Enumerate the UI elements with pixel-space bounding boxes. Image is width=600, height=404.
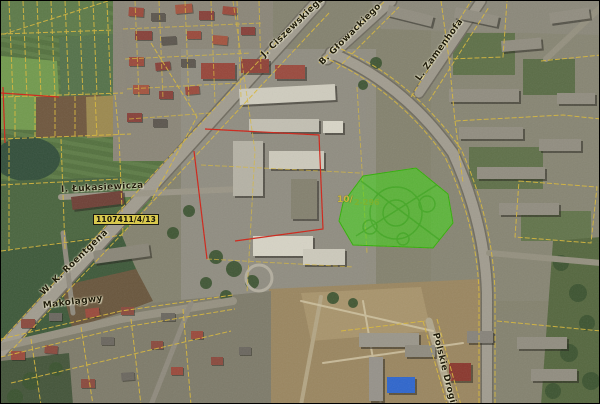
aerial-imagery-layer bbox=[1, 1, 600, 404]
map-viewport[interactable]: 1107411/4/13 10/ 2-296 J. CiszewskiegoB.… bbox=[0, 0, 600, 404]
photo-grain-overlay bbox=[1, 1, 600, 404]
